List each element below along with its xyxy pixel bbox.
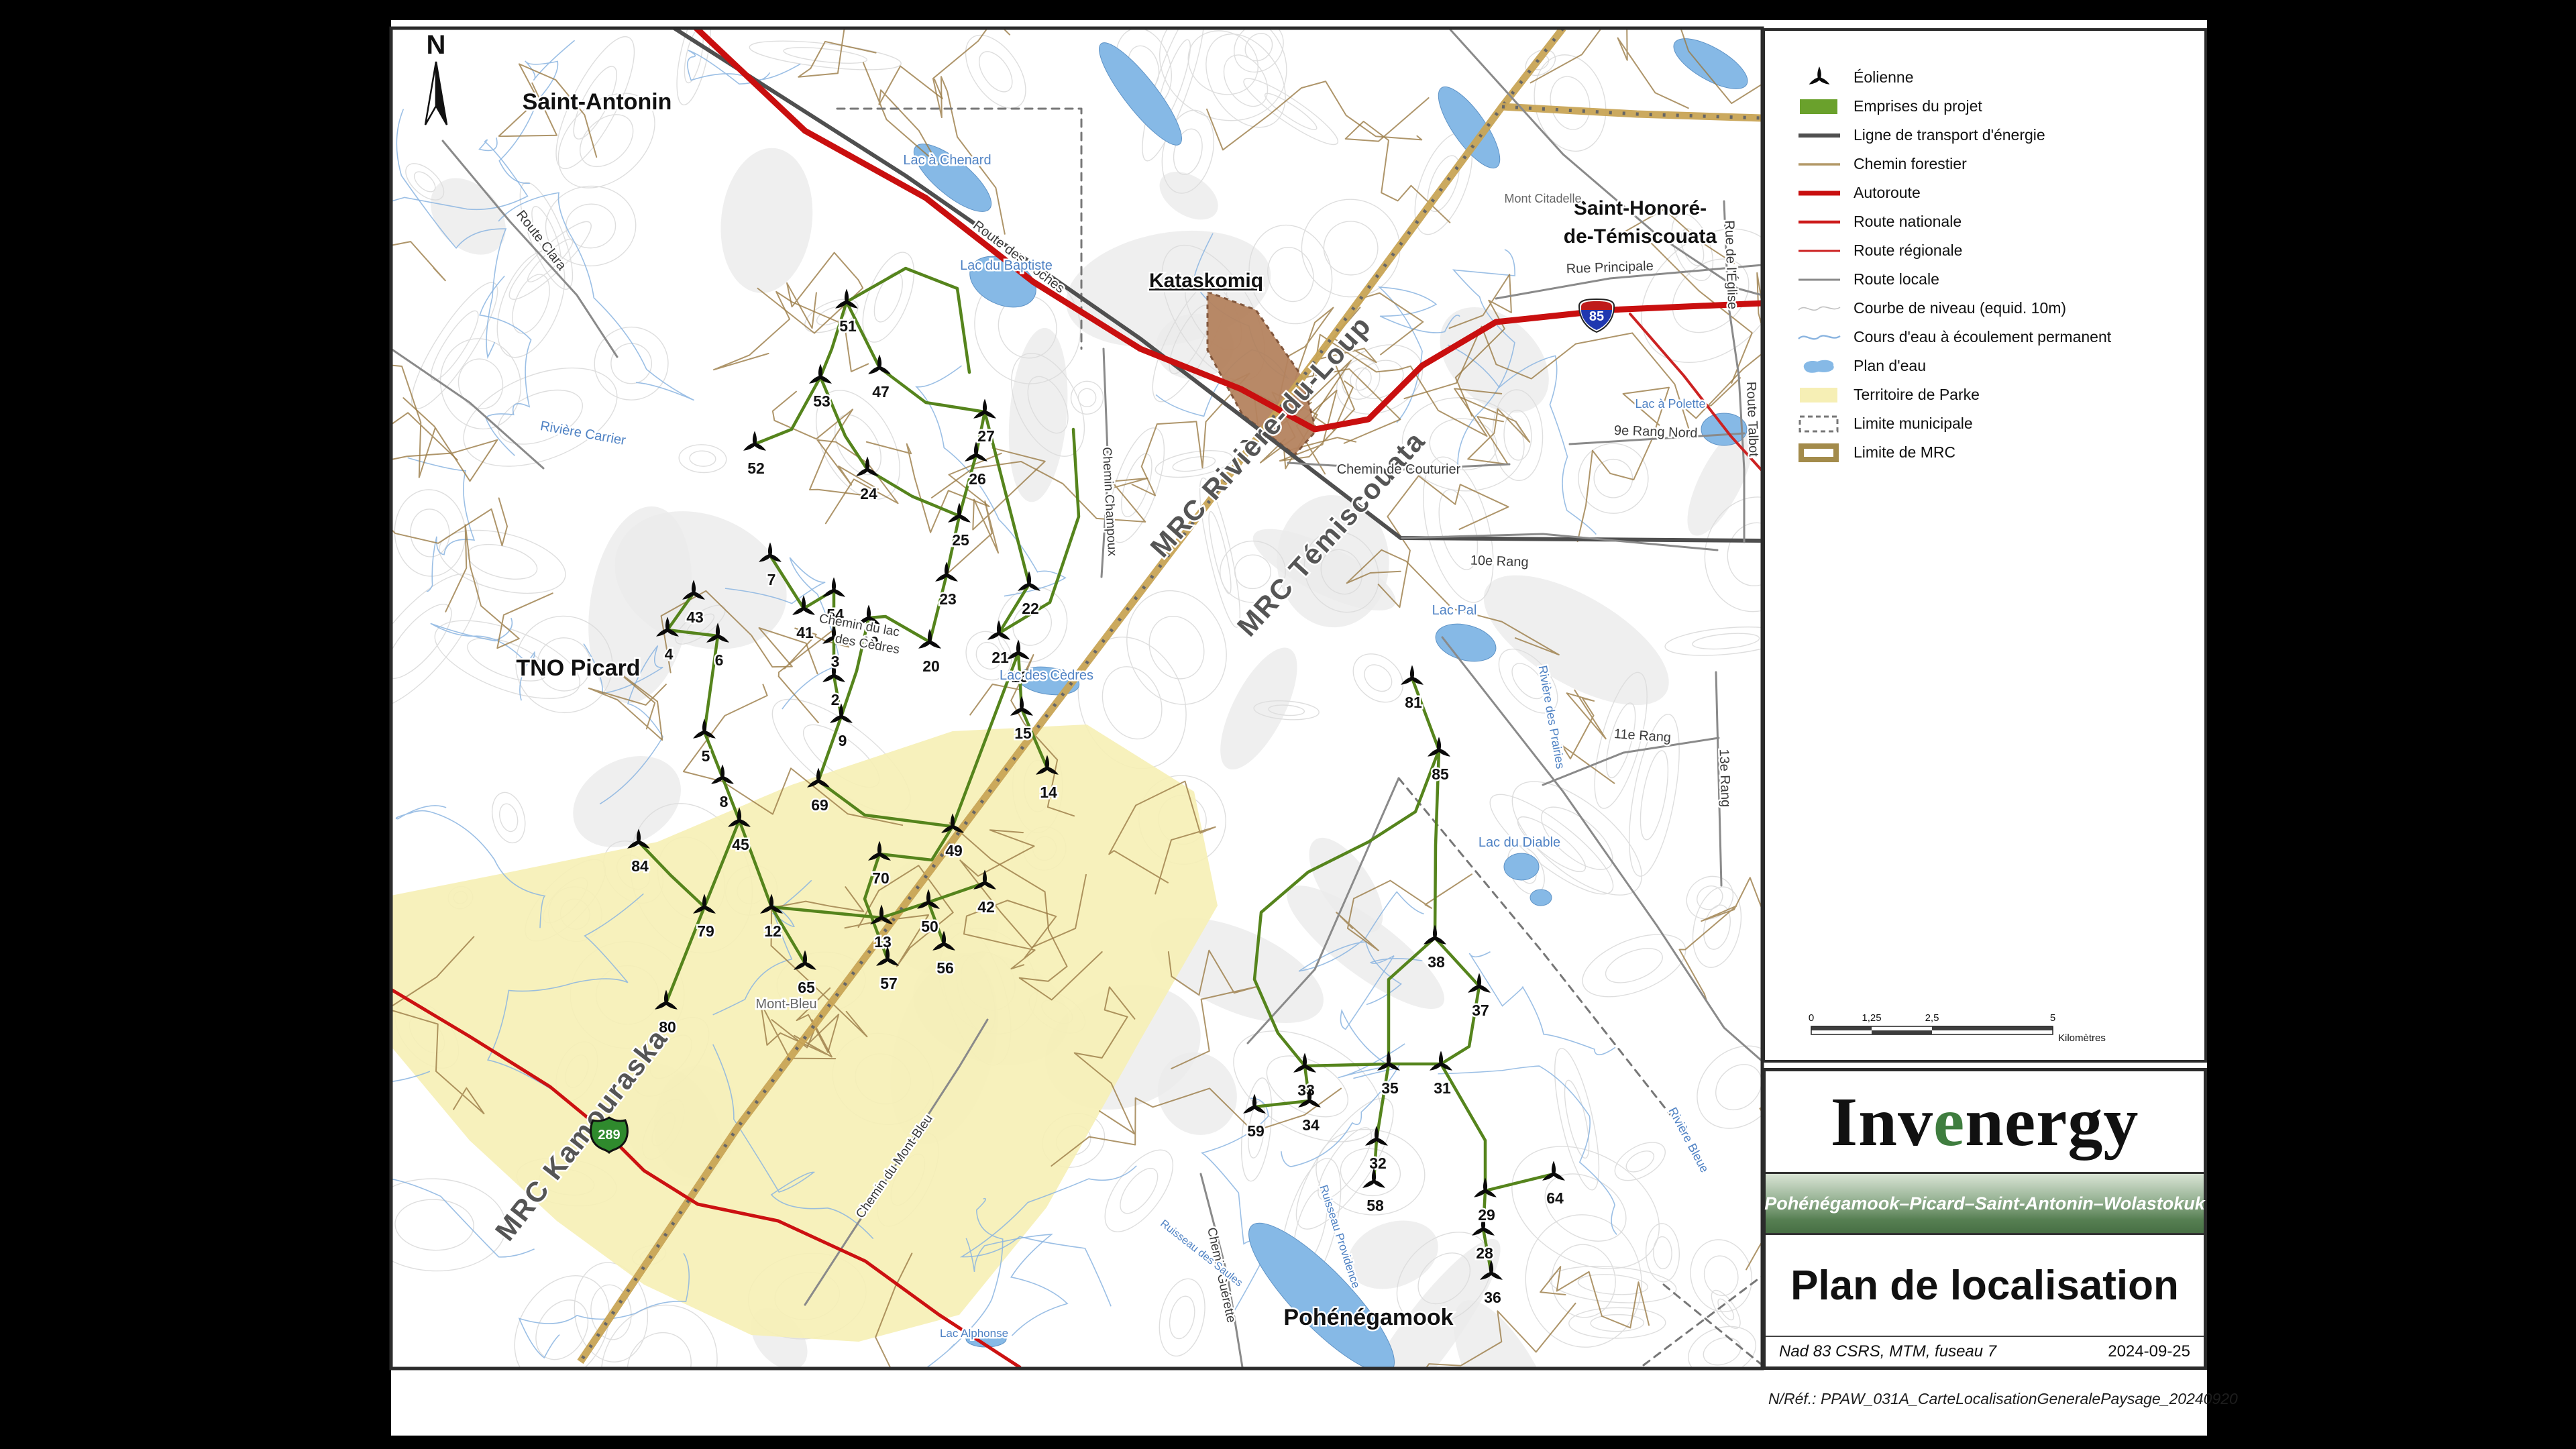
legend-row-yellow-rect: Territoire de Parke xyxy=(1796,380,2204,409)
turbine-number: 45 xyxy=(732,836,749,853)
legend-row-line-gray: Route locale xyxy=(1796,265,2204,294)
turbine-number: 36 xyxy=(1484,1289,1501,1306)
line-contour-icon xyxy=(1796,297,1843,321)
turbine-number: 81 xyxy=(1405,694,1422,711)
turbine-number: 21 xyxy=(991,649,1009,666)
turbine-number: 23 xyxy=(939,590,957,608)
line-gray-icon xyxy=(1796,268,1843,292)
line-red-thick-icon xyxy=(1796,181,1843,205)
svg-text:289: 289 xyxy=(598,1128,620,1142)
svg-text:85: 85 xyxy=(1589,309,1604,324)
legend-label: Limite municipale xyxy=(1854,415,1973,433)
dashed-rect-icon xyxy=(1796,412,1843,436)
scalebar-tick: 1,25 xyxy=(1862,1012,1881,1024)
map-label: 10e Rang xyxy=(1470,553,1528,570)
turbine-number: 43 xyxy=(686,608,704,626)
turbine-number: 15 xyxy=(1014,724,1032,742)
line-darkgray-thick-icon xyxy=(1796,123,1843,148)
turbine-number: 22 xyxy=(1022,600,1039,617)
yellow-rect-icon xyxy=(1796,383,1843,407)
turbine-number: 84 xyxy=(631,857,649,875)
scalebar-tick: 5 xyxy=(2050,1012,2055,1024)
map-label: Mont-Bleu xyxy=(755,997,816,1012)
map-label: TNO Picard xyxy=(516,655,640,681)
legend-row-water-blob: Plan d'eau xyxy=(1796,352,2204,380)
line-stream-icon xyxy=(1796,325,1843,350)
turbine-number: 56 xyxy=(936,959,954,977)
turbine-number: 14 xyxy=(1040,784,1057,801)
turbine-number: 58 xyxy=(1366,1197,1384,1214)
turbine-number: 9 xyxy=(839,732,847,749)
map-label: Saint-Honoré- xyxy=(1574,197,1707,219)
turbine-number: 47 xyxy=(872,383,890,400)
legend-items: ÉolienneEmprises du projetLigne de trans… xyxy=(1796,63,2204,467)
turbine-number: 69 xyxy=(811,796,828,814)
turbine-number: 29 xyxy=(1478,1206,1495,1224)
legend-row-line-tan: Chemin forestier xyxy=(1796,150,2204,178)
turbine-number: 51 xyxy=(839,317,857,335)
map-label: Saint-Antonin xyxy=(523,89,672,115)
map-label: Lac Pal xyxy=(1432,603,1477,618)
legend-label: Éolienne xyxy=(1854,68,1914,87)
turbine-number: 65 xyxy=(798,979,815,996)
line-red-thin-icon xyxy=(1796,239,1843,263)
legend-row-line-contour: Courbe de niveau (equid. 10m) xyxy=(1796,294,2204,323)
legend-row-turbine: Éolienne xyxy=(1796,63,2204,92)
map-label: 13e Rang xyxy=(1716,749,1733,807)
legend-panel: ÉolienneEmprises du projetLigne de trans… xyxy=(1762,28,2207,1063)
legend-label: Limite de MRC xyxy=(1854,443,1955,462)
turbine-number: 53 xyxy=(813,392,830,410)
title-block-footer: Nad 83 CSRS, MTM, fuseau 7 2024-09-25 xyxy=(1766,1336,2204,1366)
turbine-number: 31 xyxy=(1434,1079,1451,1097)
legend-label: Route régionale xyxy=(1854,241,1962,260)
map-label: Kataskomiq xyxy=(1149,270,1263,292)
logo-prefix: Inv xyxy=(1831,1082,1933,1162)
map-label: Lac des Roches xyxy=(688,1411,774,1425)
water-blob-icon xyxy=(1796,354,1843,378)
turbine-number: 12 xyxy=(764,922,782,940)
turbine-number: 34 xyxy=(1302,1116,1320,1134)
turbine-number: 57 xyxy=(880,975,898,992)
map-label: Mont Citadelle xyxy=(1504,192,1581,205)
turbine-number: 4 xyxy=(665,645,674,663)
legend-label: Emprises du projet xyxy=(1854,97,1982,115)
turbine-number: 26 xyxy=(969,470,986,488)
legend-row-green-rect: Emprises du projet xyxy=(1796,92,2204,121)
svg-text:N: N xyxy=(427,30,446,60)
turbine-number: 85 xyxy=(1432,765,1449,783)
legend-row-line-red-thick: Autoroute xyxy=(1796,178,2204,207)
title-block: Invenergy Pohénégamook–Picard–Saint-Anto… xyxy=(1762,1068,2207,1370)
map-label: Pohénégamook xyxy=(1283,1305,1453,1330)
turbine-number: 35 xyxy=(1381,1079,1399,1097)
turbine-icon xyxy=(1796,66,1843,90)
legend-row-line-red-thin: Route régionale xyxy=(1796,236,2204,265)
map-label: Lac du Baptiste xyxy=(960,258,1053,273)
map-label: 9e Rang Nord xyxy=(1614,423,1698,441)
turbine-number: 37 xyxy=(1472,1002,1489,1019)
legend-label: Plan d'eau xyxy=(1854,357,1926,375)
mrc-rect-icon xyxy=(1796,441,1843,465)
turbine-number: 32 xyxy=(1369,1155,1387,1172)
line-tan-icon xyxy=(1796,152,1843,176)
turbine-number: 33 xyxy=(1297,1081,1315,1099)
scale-bar: 01,252,55Kilomètres xyxy=(1784,1006,2160,1060)
map-label: Rue Principale xyxy=(1566,259,1654,277)
map-label: Lac à Polette xyxy=(1635,397,1705,411)
turbine-number: 24 xyxy=(860,485,877,502)
project-banner: Pohénégamook–Picard–Saint-Antonin–Wolast… xyxy=(1766,1172,2204,1235)
legend-label: Autoroute xyxy=(1854,184,1921,202)
turbine-number: 20 xyxy=(922,657,940,675)
green-rect-icon xyxy=(1796,95,1843,119)
map-label: Lac du Diable xyxy=(1479,835,1560,850)
legend-label: Route locale xyxy=(1854,270,1939,288)
turbine-number: 42 xyxy=(977,898,995,916)
turbine-number: 79 xyxy=(697,922,714,940)
turbine-number: 49 xyxy=(945,842,963,859)
logo-green-letter: e xyxy=(1933,1082,1965,1162)
legend-row-line-darkgray-thick: Ligne de transport d'énergie xyxy=(1796,121,2204,150)
reference-note: N/Réf.: PPAW_031A_CarteLocalisationGener… xyxy=(1768,1390,2238,1408)
map-label: Route Talbot xyxy=(1743,381,1761,457)
scalebar-tick: 2,5 xyxy=(1925,1012,1939,1024)
turbine-number: 38 xyxy=(1428,953,1445,971)
map-label: Lac des Cèdres xyxy=(1000,668,1093,683)
legend-row-line-stream: Cours d'eau à écoulement permanent xyxy=(1796,323,2204,352)
turbine-number: 50 xyxy=(921,918,938,935)
scalebar-tick: 0 xyxy=(1809,1012,1814,1024)
scalebar-unit: Kilomètres xyxy=(2058,1032,2106,1044)
turbine-number: 13 xyxy=(874,933,892,951)
turbine-number: 64 xyxy=(1546,1189,1564,1207)
legend-label: Chemin forestier xyxy=(1854,155,1967,173)
map-label: Rue de l'Église xyxy=(1722,220,1741,310)
map-title: Plan de localisation xyxy=(1766,1235,2204,1336)
turbine-number: 41 xyxy=(796,624,814,641)
legend-label: Cours d'eau à écoulement permanent xyxy=(1854,328,2111,346)
map-label: de-Témiscouata xyxy=(1564,225,1717,248)
turbine-number: 6 xyxy=(715,651,724,669)
legend-row-dashed-rect: Limite municipale xyxy=(1796,409,2204,438)
screenshot-stage: 2345678910121314151620212223242526272829… xyxy=(0,0,2576,1449)
turbine-number: 7 xyxy=(767,571,776,588)
turbine-number: 2 xyxy=(831,691,840,708)
map-label: Lac Alphonse xyxy=(940,1327,1008,1340)
legend-label: Ligne de transport d'énergie xyxy=(1854,126,2045,144)
turbine-number: 59 xyxy=(1247,1122,1265,1140)
legend-label: Courbe de niveau (equid. 10m) xyxy=(1854,299,2066,317)
turbine-number: 28 xyxy=(1476,1244,1493,1262)
logo-suffix: nergy xyxy=(1965,1082,2139,1162)
map-label: Chemin de Couturier xyxy=(1337,462,1461,477)
legend-row-line-red-med: Route nationale xyxy=(1796,207,2204,236)
legend-label: Route nationale xyxy=(1854,213,1962,231)
datum-note: Nad 83 CSRS, MTM, fuseau 7 xyxy=(1779,1342,1996,1361)
turbine-number: 70 xyxy=(872,869,890,887)
turbine-number: 25 xyxy=(952,531,969,549)
turbine-number: 3 xyxy=(831,653,840,670)
invenergy-logo: Invenergy xyxy=(1766,1071,2204,1172)
date-label: 2024-09-25 xyxy=(2108,1342,2190,1361)
turbine-number: 5 xyxy=(702,747,710,765)
turbine-number: 52 xyxy=(747,460,765,477)
map-label: Lac à Chenard xyxy=(903,153,991,168)
turbine-number: 8 xyxy=(720,793,729,810)
legend-label: Territoire de Parke xyxy=(1854,386,1980,404)
turbine-number: 27 xyxy=(977,427,995,445)
legend-row-mrc-rect: Limite de MRC xyxy=(1796,438,2204,467)
line-red-med-icon xyxy=(1796,210,1843,234)
